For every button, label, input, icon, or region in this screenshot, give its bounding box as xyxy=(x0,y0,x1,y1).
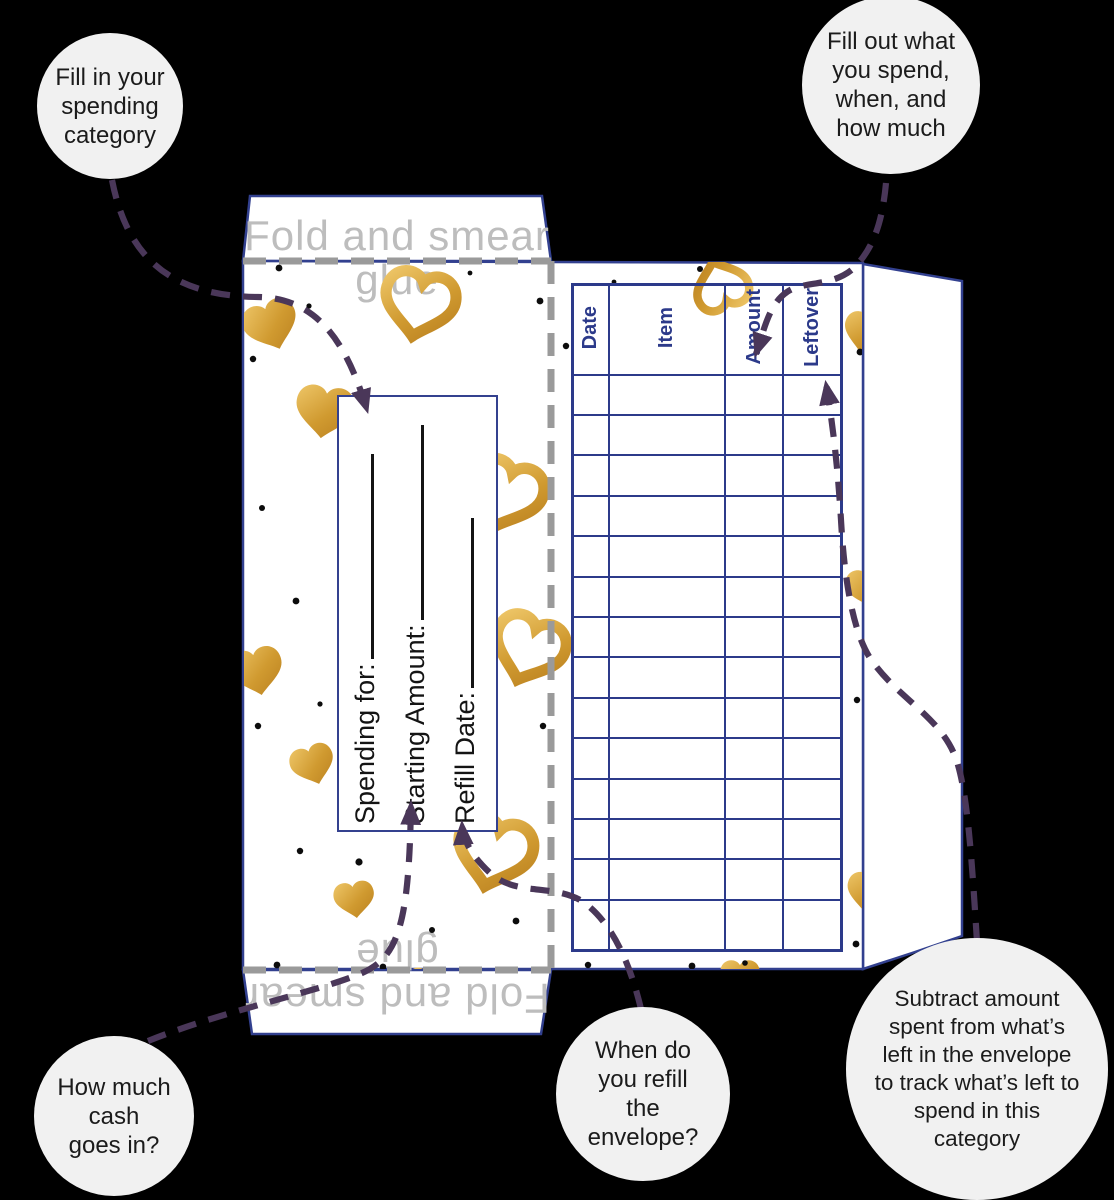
tracker-row xyxy=(573,496,842,536)
tracker-cell xyxy=(573,819,609,859)
spending-for-blank xyxy=(351,454,374,659)
fold-glue-label-bottom: Fold and smear glue xyxy=(243,932,551,1020)
tracker-cell xyxy=(725,819,783,859)
tracker-cell xyxy=(725,415,783,455)
tracker-cell xyxy=(725,900,783,951)
tracker-cell xyxy=(609,698,725,738)
tracker-row xyxy=(573,617,842,657)
tracker-cell xyxy=(573,657,609,697)
tracker-row xyxy=(573,375,842,415)
tracker-cell xyxy=(725,859,783,899)
tracker-cell xyxy=(609,536,725,576)
envelope-label-box: Spending for: Starting Amount: Refill Da… xyxy=(337,395,498,832)
tracker-cell xyxy=(609,859,725,899)
tracker-cell xyxy=(725,657,783,697)
tracker-cell xyxy=(609,779,725,819)
bubble-fill-category: Fill in your spending category xyxy=(37,33,183,179)
tracker-cell xyxy=(573,779,609,819)
fold-glue-label-top: Fold and smear glue xyxy=(243,214,551,302)
tracker-cell xyxy=(609,577,725,617)
tracker-header-row: DateItemAmountLeftover xyxy=(573,285,842,375)
tracker-cell xyxy=(609,738,725,778)
tracker-cell xyxy=(573,577,609,617)
tracker-col-header-item: Item xyxy=(609,285,725,375)
tracker-cell xyxy=(573,455,609,495)
tracker-cell xyxy=(609,496,725,536)
tracker-cell xyxy=(609,819,725,859)
tracker-row xyxy=(573,698,842,738)
tracker-row xyxy=(573,779,842,819)
tracker-cell xyxy=(609,900,725,951)
tracker-col-header-date: Date xyxy=(573,285,609,375)
bubble-refill-when-text: When do you refill the envelope? xyxy=(588,1036,699,1152)
bubble-fill-out-spend: Fill out what you spend, when, and how m… xyxy=(802,0,980,174)
starting-amount-label: Starting Amount: xyxy=(400,624,430,824)
tracker-cell xyxy=(609,455,725,495)
tracker-col-header-leftover: Leftover xyxy=(783,285,841,375)
tracker-cell xyxy=(573,415,609,455)
tracker-cell xyxy=(783,738,841,778)
bubble-fill-category-text: Fill in your spending category xyxy=(55,63,164,150)
bubble-cash-in-text: How much cash goes in? xyxy=(57,1073,170,1160)
tracker-cell xyxy=(783,375,841,415)
tracker-cell xyxy=(725,455,783,495)
tracker-cell xyxy=(783,779,841,819)
bubble-subtract-leftover: Subtract amount spent from what’s left i… xyxy=(846,938,1108,1200)
starting-amount-field: Starting Amount: xyxy=(390,398,440,830)
tracker-cell xyxy=(783,657,841,697)
tracker-cell xyxy=(573,375,609,415)
right-glue-flap xyxy=(863,264,962,969)
tracker-col-header-amount: Amount xyxy=(725,285,783,375)
tracker-cell xyxy=(783,455,841,495)
tracker-row xyxy=(573,657,842,697)
refill-date-label: Refill Date: xyxy=(450,691,480,823)
tracker-row xyxy=(573,738,842,778)
tracker-cell xyxy=(725,617,783,657)
tracker-cell xyxy=(725,738,783,778)
tracker-row xyxy=(573,577,842,617)
tracker-cell xyxy=(573,496,609,536)
tracker-cell xyxy=(783,415,841,455)
refill-date-blank xyxy=(451,517,474,687)
tracker-cell xyxy=(573,617,609,657)
tracker-row xyxy=(573,859,842,899)
refill-date-field: Refill Date: xyxy=(440,398,490,830)
tracker-cell xyxy=(725,779,783,819)
tracker-cell xyxy=(725,496,783,536)
tracker-body xyxy=(573,375,842,951)
tracker-cell xyxy=(783,698,841,738)
budget-envelope-infographic: Fold and smear glue Fold and smear glue xyxy=(0,0,1114,1200)
spending-tracker-table: DateItemAmountLeftover xyxy=(571,283,843,952)
spending-for-label: Spending for: xyxy=(350,663,380,824)
tracker-cell xyxy=(609,657,725,697)
tracker-cell xyxy=(573,698,609,738)
tracker-row xyxy=(573,455,842,495)
bubble-cash-in: How much cash goes in? xyxy=(34,1036,194,1196)
tracker-cell xyxy=(783,536,841,576)
tracker-cell xyxy=(783,577,841,617)
tracker-cell xyxy=(609,415,725,455)
tracker-cell xyxy=(609,617,725,657)
tracker-cell xyxy=(725,698,783,738)
tracker-row xyxy=(573,536,842,576)
tracker-cell xyxy=(609,375,725,415)
envelope-label-rotated: Spending for: Starting Amount: Refill Da… xyxy=(340,398,496,830)
tracker-row xyxy=(573,819,842,859)
starting-amount-blank xyxy=(401,425,424,620)
tracker-cell xyxy=(573,859,609,899)
spending-for-field: Spending for: xyxy=(340,398,390,830)
bubble-fill-out-spend-text: Fill out what you spend, when, and how m… xyxy=(827,27,955,143)
bubble-subtract-leftover-text: Subtract amount spent from what’s left i… xyxy=(875,985,1080,1153)
arrow-subtract-to-leftover xyxy=(826,384,977,942)
tracker-cell xyxy=(783,819,841,859)
tracker-row xyxy=(573,900,842,951)
tracker-cell xyxy=(725,536,783,576)
tracker-cell xyxy=(783,900,841,951)
tracker-cell xyxy=(573,900,609,951)
tracker-cell xyxy=(725,375,783,415)
tracker-cell xyxy=(783,496,841,536)
tracker-row xyxy=(573,415,842,455)
tracker-cell xyxy=(783,859,841,899)
tracker-cell xyxy=(573,738,609,778)
bubble-refill-when: When do you refill the envelope? xyxy=(556,1007,730,1181)
tracker-cell xyxy=(573,536,609,576)
tracker-cell xyxy=(783,617,841,657)
tracker-cell xyxy=(725,577,783,617)
